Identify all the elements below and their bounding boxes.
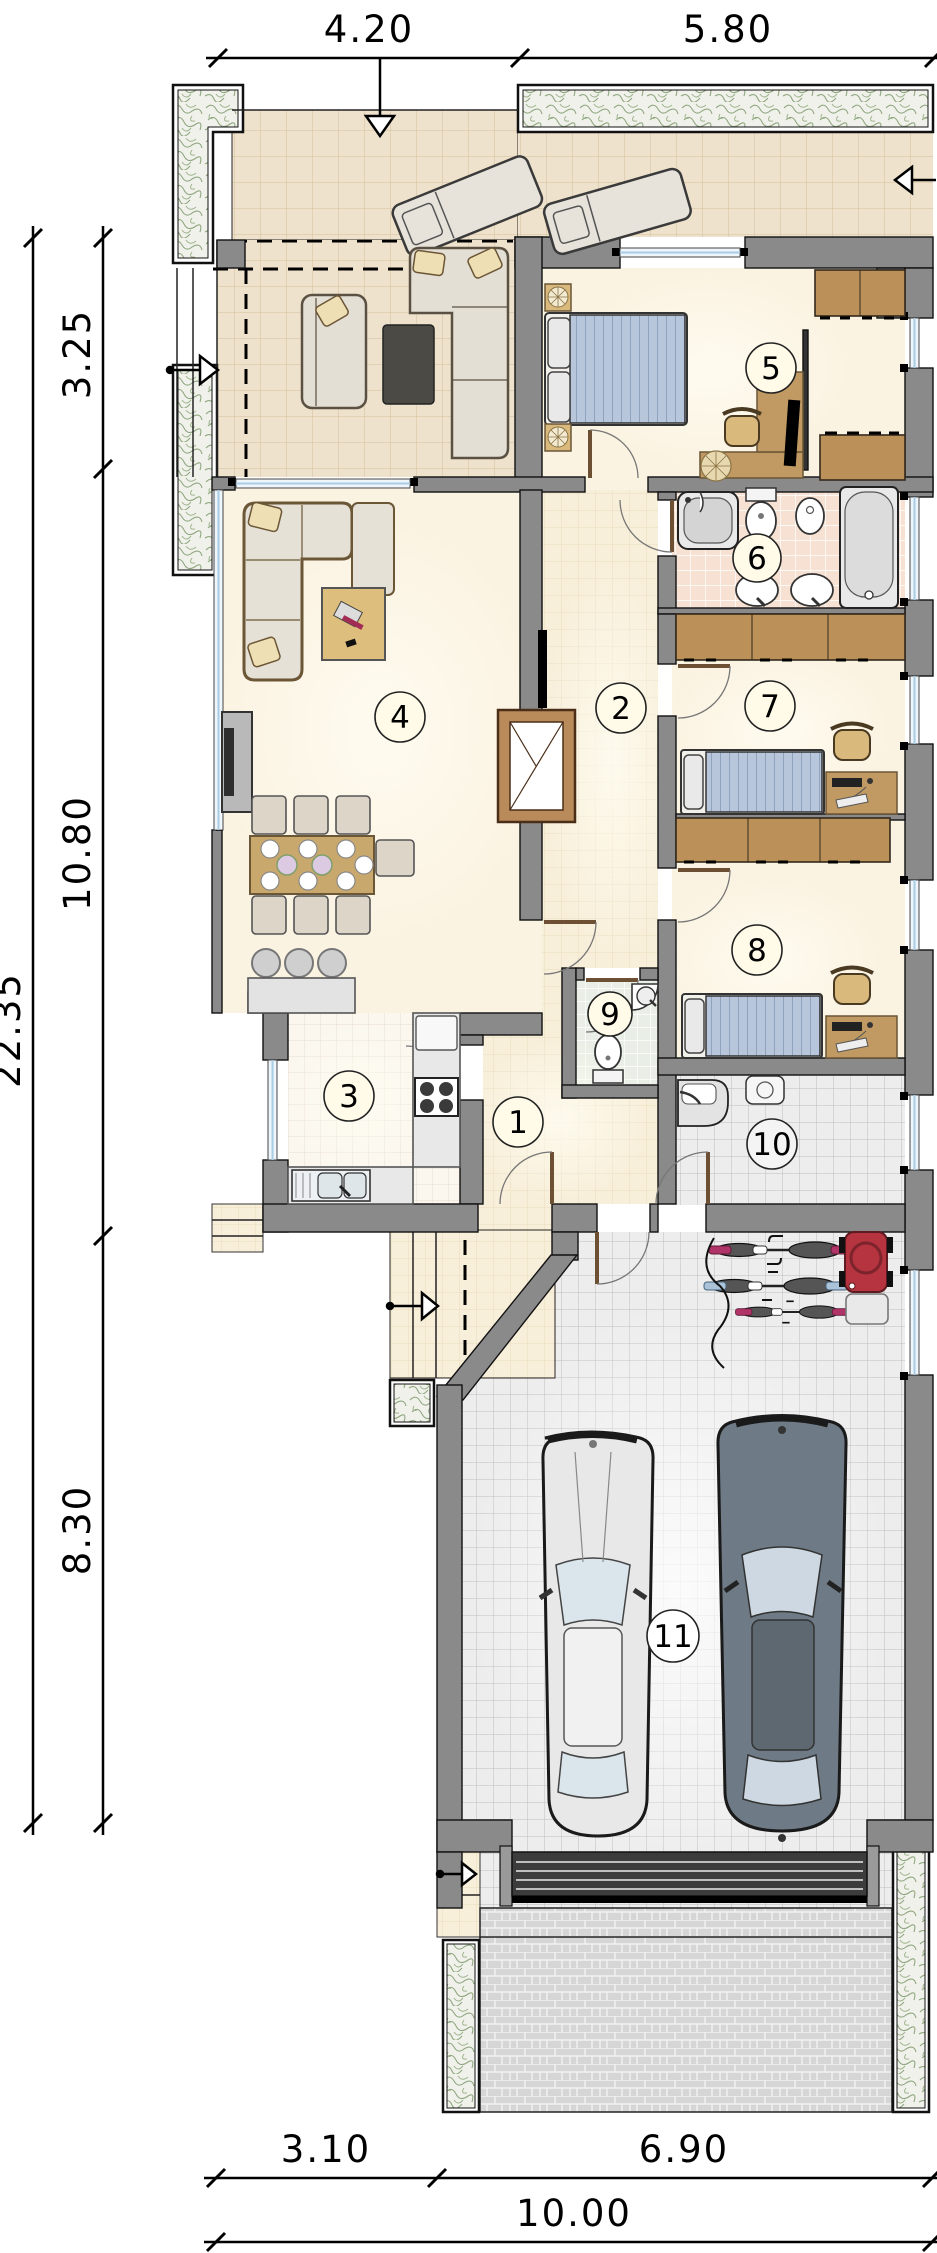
dim-left-total-label: 22.35 <box>0 972 29 1088</box>
keyboard <box>832 1022 862 1031</box>
car-roof <box>564 1628 622 1746</box>
wall-living-west <box>212 830 222 1013</box>
window-bed5-east <box>910 318 919 368</box>
car-light <box>540 1432 653 1836</box>
window-bath-east <box>910 497 919 600</box>
room-label-8: 8 <box>747 933 767 969</box>
desk-bed8 <box>826 1016 897 1058</box>
bed-single-8 <box>682 994 822 1058</box>
nightstand-bottom <box>545 424 571 451</box>
room-label-10: 10 <box>752 1127 791 1163</box>
bar-stools <box>252 949 346 977</box>
room-circle-4: 4 <box>375 692 425 742</box>
windshield <box>742 1547 822 1617</box>
toilet <box>746 488 776 540</box>
window-bed5-north <box>620 248 740 257</box>
wall-hall-east-b <box>658 716 676 868</box>
driveway-paving <box>480 1908 892 2112</box>
room-label-4: 4 <box>390 700 410 736</box>
room-label-3: 3 <box>339 1079 359 1115</box>
pillow <box>684 755 703 809</box>
wall-bed5-west <box>515 237 542 490</box>
utility-sink <box>678 1080 728 1126</box>
kitchen-fridge <box>416 1016 457 1050</box>
dining-chair <box>336 796 370 834</box>
saddle <box>753 1246 767 1254</box>
wall-terrace-stub <box>217 240 245 268</box>
pillow <box>548 318 570 368</box>
front-door-threshold <box>478 1204 552 1232</box>
wall-wc-bottom <box>562 1085 658 1098</box>
window-kitchen-west <box>268 1060 277 1160</box>
room-label-11: 11 <box>653 1619 692 1655</box>
nightstand-top <box>545 284 571 311</box>
room-circle-7: 7 <box>745 681 795 731</box>
wall-living-south <box>460 1013 542 1035</box>
coffee-table <box>322 588 385 660</box>
room-circle-6: 6 <box>733 534 781 582</box>
wall-bed5-top-right <box>745 237 933 268</box>
window-bed7-east <box>910 676 919 744</box>
tv-living <box>224 728 234 796</box>
room-label-5: 5 <box>761 351 781 387</box>
wall-wc-top-b <box>640 968 658 980</box>
room-circle-5: 5 <box>746 343 796 393</box>
wall-south-b <box>552 1204 597 1232</box>
wall-kitchen-east-b <box>460 1100 483 1204</box>
window-garage-east <box>910 1270 919 1375</box>
wall-kitchen-west-a <box>263 1013 288 1060</box>
planter-driveway-left <box>443 1940 479 2112</box>
planter-porch <box>390 1380 434 1426</box>
floor-plan-page: 1 2 3 4 5 6 7 8 9 10 11 4.20 5.80 22.35 <box>0 0 937 2253</box>
wall-wc-top-a <box>576 968 584 980</box>
centerpiece-flowers <box>277 855 297 875</box>
outdoor-sofa-2seat <box>302 294 366 408</box>
wall-living-top <box>414 477 585 492</box>
bed-single-7 <box>681 750 824 814</box>
room-circle-11: 11 <box>647 1610 699 1662</box>
window-bed8-east <box>910 880 919 950</box>
window-utility-east <box>910 1095 919 1170</box>
bed-double <box>545 313 687 425</box>
dim-top-1: 4.20 <box>324 8 414 51</box>
pillow <box>685 999 704 1053</box>
dim-left-2: 10.80 <box>56 795 99 911</box>
dining-chair <box>252 896 286 934</box>
breakfast-bar <box>248 978 355 1013</box>
outdoor-coffee-table <box>383 325 434 404</box>
window-living-north <box>236 479 410 488</box>
room-circle-10: 10 <box>747 1119 797 1169</box>
planter-driveway-right <box>893 1835 929 2112</box>
utility-basin-2 <box>746 1076 784 1104</box>
wall-east-a <box>905 268 933 318</box>
chaise <box>352 503 394 595</box>
wall-kitchen-east-a <box>460 1035 483 1045</box>
wall-bath-west-b <box>658 556 676 614</box>
wall-bath-west-a <box>658 492 676 500</box>
keyboard <box>832 778 862 787</box>
floor-plan-svg: 1 2 3 4 5 6 7 8 9 10 11 4.20 5.80 22.35 <box>0 0 937 2253</box>
dim-bottom-segments: 3.10 6.90 <box>204 2128 937 2187</box>
wall-hall-east-a <box>658 614 676 664</box>
wall-garage-west-return <box>437 1852 462 1908</box>
dim-left-3: 8.30 <box>56 1485 99 1575</box>
dresser-bed5 <box>820 435 905 480</box>
dim-bottom-1: 3.10 <box>281 2128 371 2171</box>
fireplace <box>498 710 575 822</box>
dim-left-segments: 3.25 10.80 8.30 <box>56 226 112 1835</box>
dining-chair <box>294 896 328 934</box>
wall-south-jamb <box>650 1204 658 1232</box>
room-circle-9: 9 <box>588 992 632 1036</box>
dining-chair <box>252 796 286 834</box>
desk-bed7 <box>826 772 897 814</box>
sofa-pillow <box>413 250 446 276</box>
car-roof <box>752 1620 814 1750</box>
dim-left-1: 3.25 <box>56 309 99 399</box>
saddle <box>748 1282 762 1290</box>
room-circle-8: 8 <box>732 925 782 975</box>
wardrobe-bed7 <box>676 614 905 660</box>
room-circle-2: 2 <box>596 683 646 733</box>
room-circle-3: 3 <box>324 1071 374 1121</box>
wall-south-c <box>706 1204 905 1232</box>
rear-window <box>558 1752 628 1798</box>
wall-east-f <box>905 1170 933 1270</box>
wall-east-c <box>905 600 933 676</box>
room-circle-1: 1 <box>493 1097 543 1147</box>
wall-living-hall-b <box>520 822 542 920</box>
dining-chair <box>336 896 370 934</box>
planter-top-right <box>518 85 933 132</box>
kitchen-sink <box>292 1170 370 1201</box>
dining-chair-head <box>376 840 414 876</box>
windshield <box>556 1558 630 1625</box>
wall-south-a <box>263 1204 478 1232</box>
pillow <box>548 372 570 422</box>
planter-terrace-left <box>173 365 217 575</box>
wall-east-e <box>905 950 933 1095</box>
dining-chair <box>294 796 328 834</box>
room-label-6: 6 <box>747 541 767 577</box>
wall-garage-west <box>437 1385 462 1852</box>
stove <box>415 1078 458 1116</box>
dim-left-total: 22.35 <box>0 226 42 1835</box>
dim-bottom-2: 6.90 <box>639 2128 729 2171</box>
wall-east-garage <box>905 1375 933 1820</box>
bidet <box>796 498 824 534</box>
wc-toilet <box>593 1035 623 1083</box>
wall-east-d <box>905 744 933 880</box>
room-label-9: 9 <box>600 997 620 1033</box>
tv-hall-wall <box>538 630 547 708</box>
room-label-2: 2 <box>611 691 631 727</box>
bathtub <box>840 487 898 608</box>
dim-top-2: 5.80 <box>683 8 773 51</box>
wall-wc-west <box>562 968 576 1098</box>
garage-door <box>500 1846 879 1906</box>
tv-sideboard <box>222 712 252 812</box>
wall-bed8-bottom <box>658 1058 905 1075</box>
wardrobe-bed8 <box>676 818 890 862</box>
rear-window <box>743 1755 821 1806</box>
room-label-1: 1 <box>508 1105 528 1141</box>
room-label-7: 7 <box>760 689 780 725</box>
lawn-mower <box>840 1232 892 1324</box>
tub-faucet <box>865 591 873 599</box>
car-dark <box>718 1416 846 1843</box>
centerpiece-flowers <box>312 855 332 875</box>
side-stoop <box>212 1204 263 1252</box>
dim-bottom-total: 10.00 <box>204 2192 937 2251</box>
mower-catcher <box>846 1294 888 1324</box>
shower-basin <box>678 492 738 549</box>
dim-top: 4.20 5.80 <box>206 8 937 67</box>
dim-bottom-total-label: 10.00 <box>516 2192 632 2235</box>
